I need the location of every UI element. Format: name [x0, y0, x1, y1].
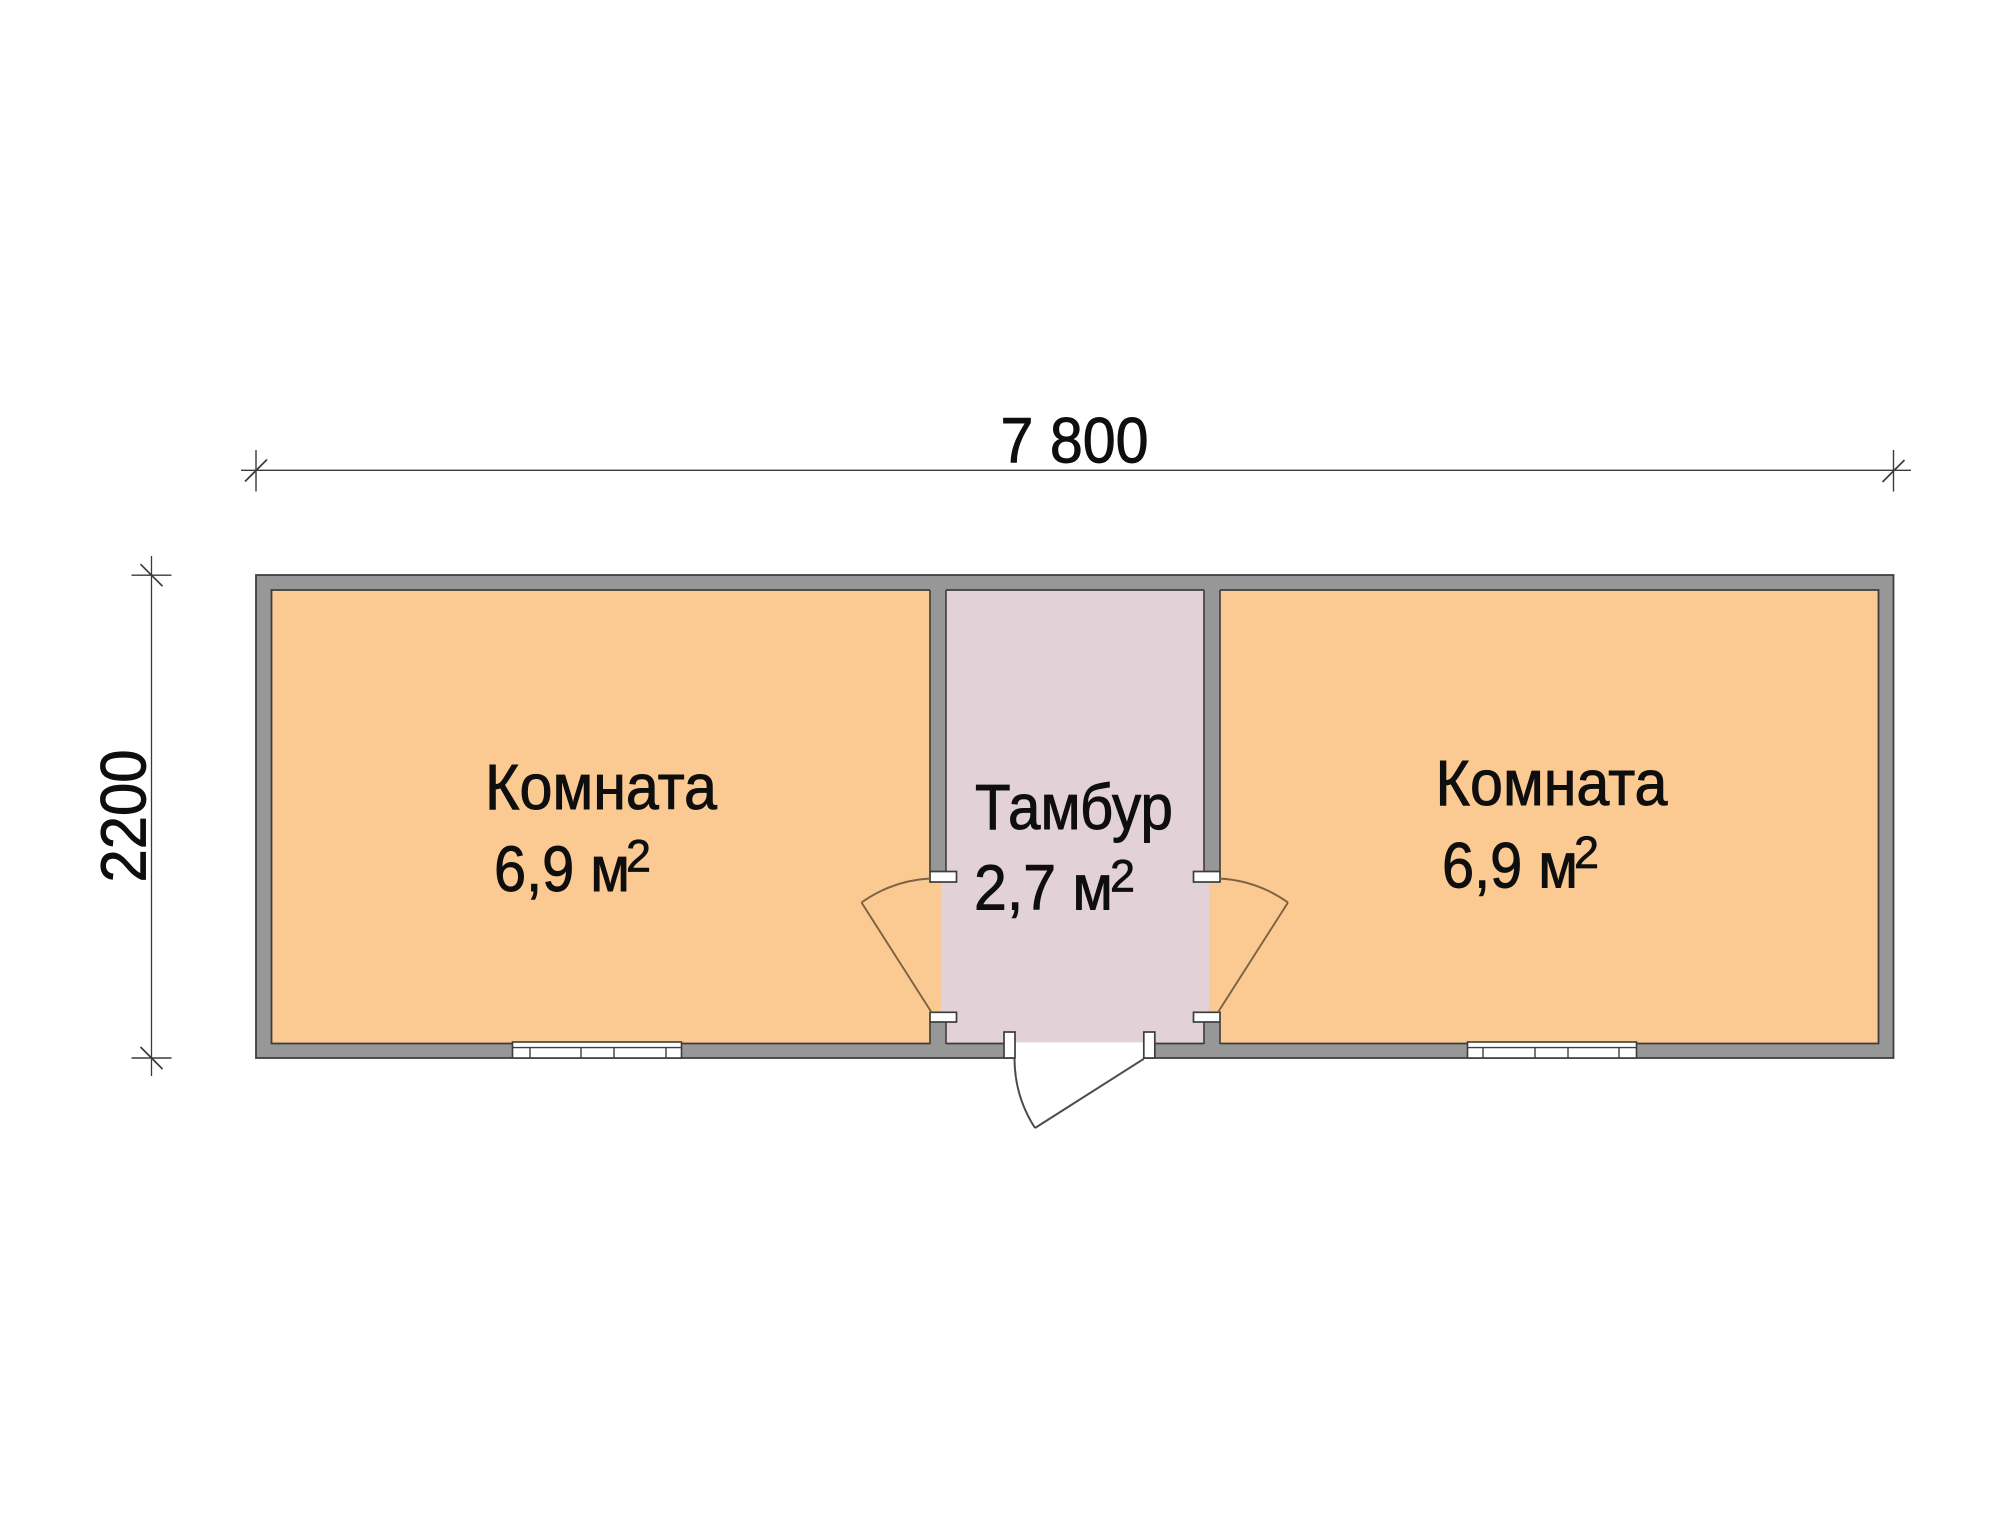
- svg-text:2,7 м: 2,7 м: [974, 852, 1113, 924]
- svg-text:7 800: 7 800: [1001, 405, 1149, 477]
- svg-text:Тамбур: Тамбур: [975, 771, 1173, 843]
- svg-text:2200: 2200: [88, 750, 160, 883]
- svg-text:2: 2: [626, 831, 651, 882]
- svg-text:6,9 м: 6,9 м: [494, 833, 630, 905]
- svg-text:Комната: Комната: [1436, 747, 1668, 819]
- svg-text:6,9 м: 6,9 м: [1442, 830, 1578, 902]
- svg-text:Комната: Комната: [485, 751, 717, 823]
- svg-text:2: 2: [1574, 827, 1599, 878]
- svg-text:2: 2: [1110, 851, 1135, 902]
